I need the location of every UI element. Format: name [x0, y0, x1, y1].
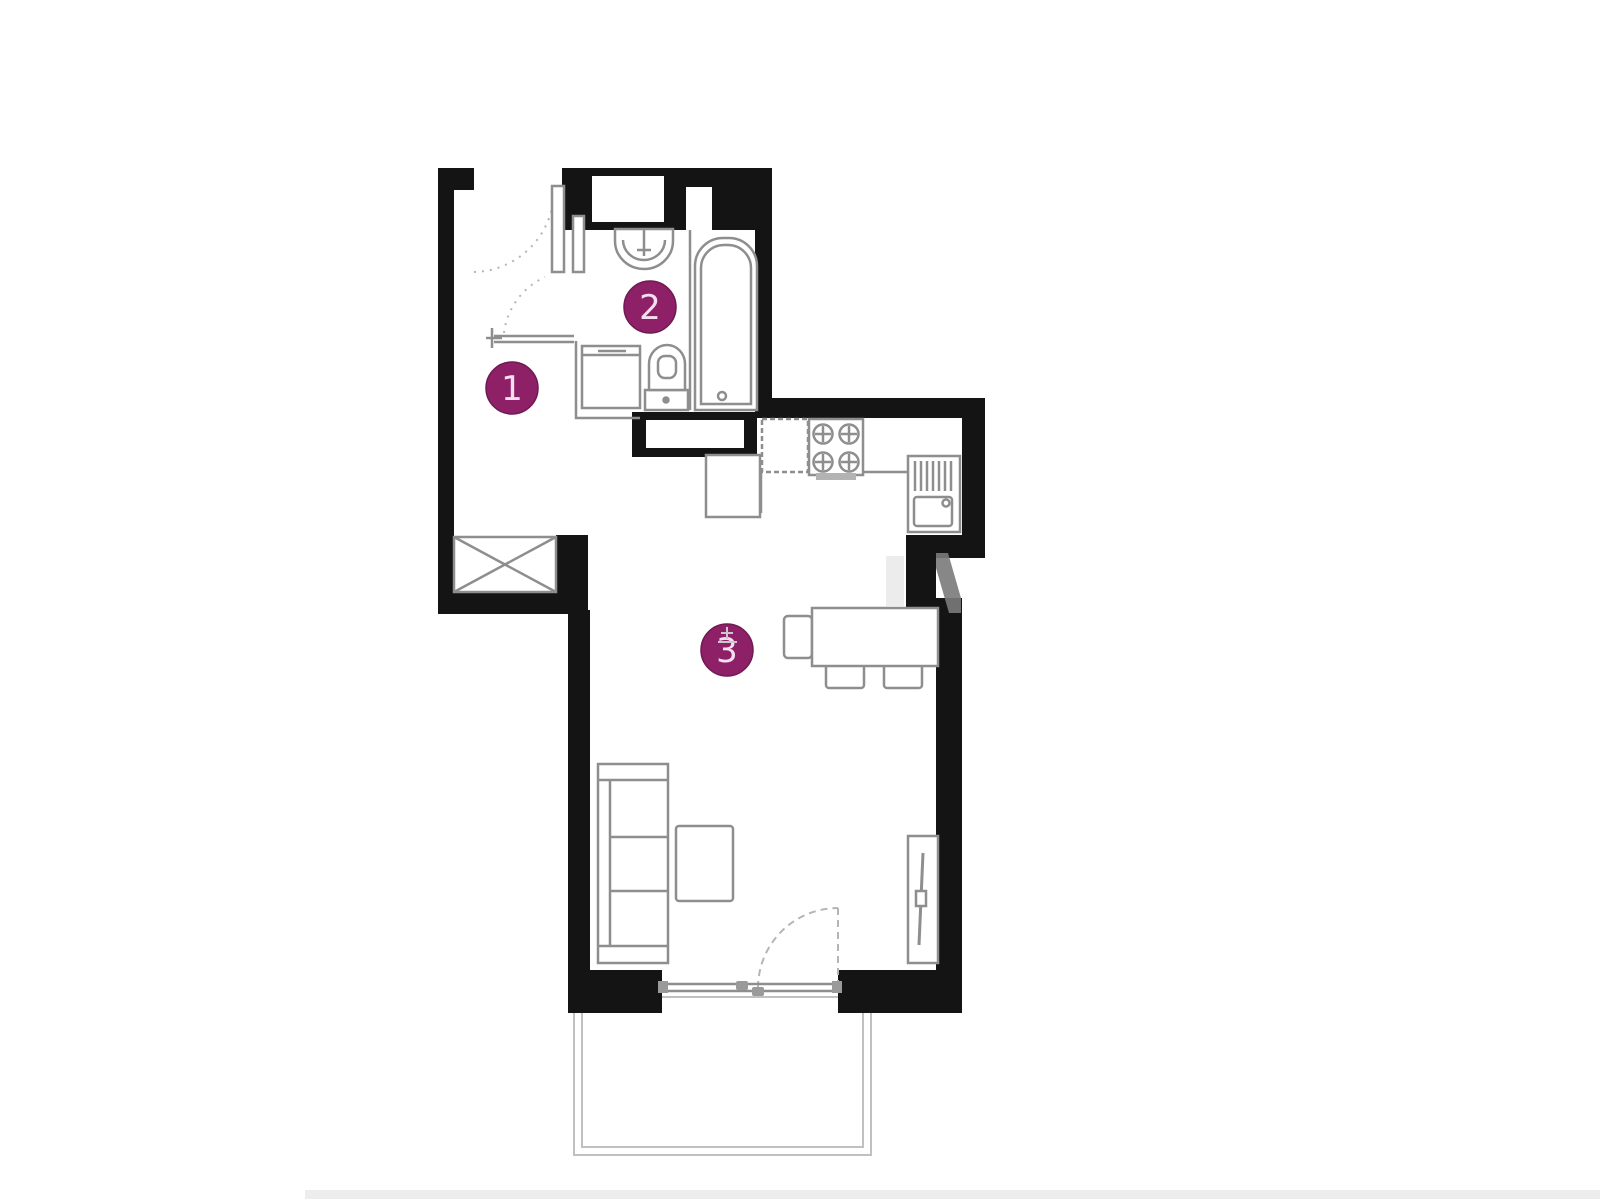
coat-rail: [486, 328, 574, 348]
balcony-door-arc: [758, 908, 838, 988]
room-marker-2-label: 2: [639, 288, 661, 328]
wall-jog-upper: [906, 535, 936, 615]
duct-opening-large: [592, 176, 664, 222]
balcony: [574, 997, 871, 1155]
wall-shaft-side: [556, 535, 588, 614]
bottom-page-strip: [305, 1190, 1600, 1199]
wall-niche: [646, 420, 744, 448]
bathtub: [695, 238, 757, 410]
wall-living-left: [568, 610, 590, 1013]
floor-plan-page: 1 2 3: [0, 0, 1600, 1199]
tv-stand: [908, 836, 938, 963]
chair-left: [784, 616, 812, 658]
floor-plan: 1 2 3: [0, 0, 1600, 1199]
bathroom-door-arc: [504, 277, 545, 333]
room-marker-1-label: 1: [501, 369, 523, 409]
dining-table: [812, 608, 938, 666]
entrance-door-leaf: [552, 186, 564, 272]
wall-living-right: [936, 598, 962, 1013]
stove: [809, 419, 863, 480]
washbasin: [615, 229, 673, 269]
sofa: [598, 764, 668, 963]
toilet: [645, 345, 688, 410]
coffee-table: [676, 826, 733, 901]
wall-bottom-right: [838, 970, 962, 1013]
bathroom-door-leaf: [573, 216, 584, 272]
wall-hall-left: [438, 168, 454, 614]
balcony-door-sill: [658, 981, 842, 996]
entrance-door-arc: [474, 190, 554, 272]
wall-kitchen-right: [962, 398, 985, 555]
balcony-rail-outer: [574, 1013, 871, 1155]
wall-entry-stub: [438, 168, 474, 190]
kitchen-sink: [908, 456, 960, 532]
balcony-rail-inner: [582, 1013, 863, 1147]
washing-machine: [582, 346, 640, 408]
wall-bottom-left: [568, 970, 662, 1013]
wardrobe-shaft-box: [454, 537, 556, 592]
fridge: [762, 419, 808, 472]
fixtures: [454, 186, 960, 996]
wall-kitchen-top: [755, 398, 985, 418]
kitchen-cabinet: [706, 455, 760, 517]
duct-opening-small: [686, 187, 712, 230]
